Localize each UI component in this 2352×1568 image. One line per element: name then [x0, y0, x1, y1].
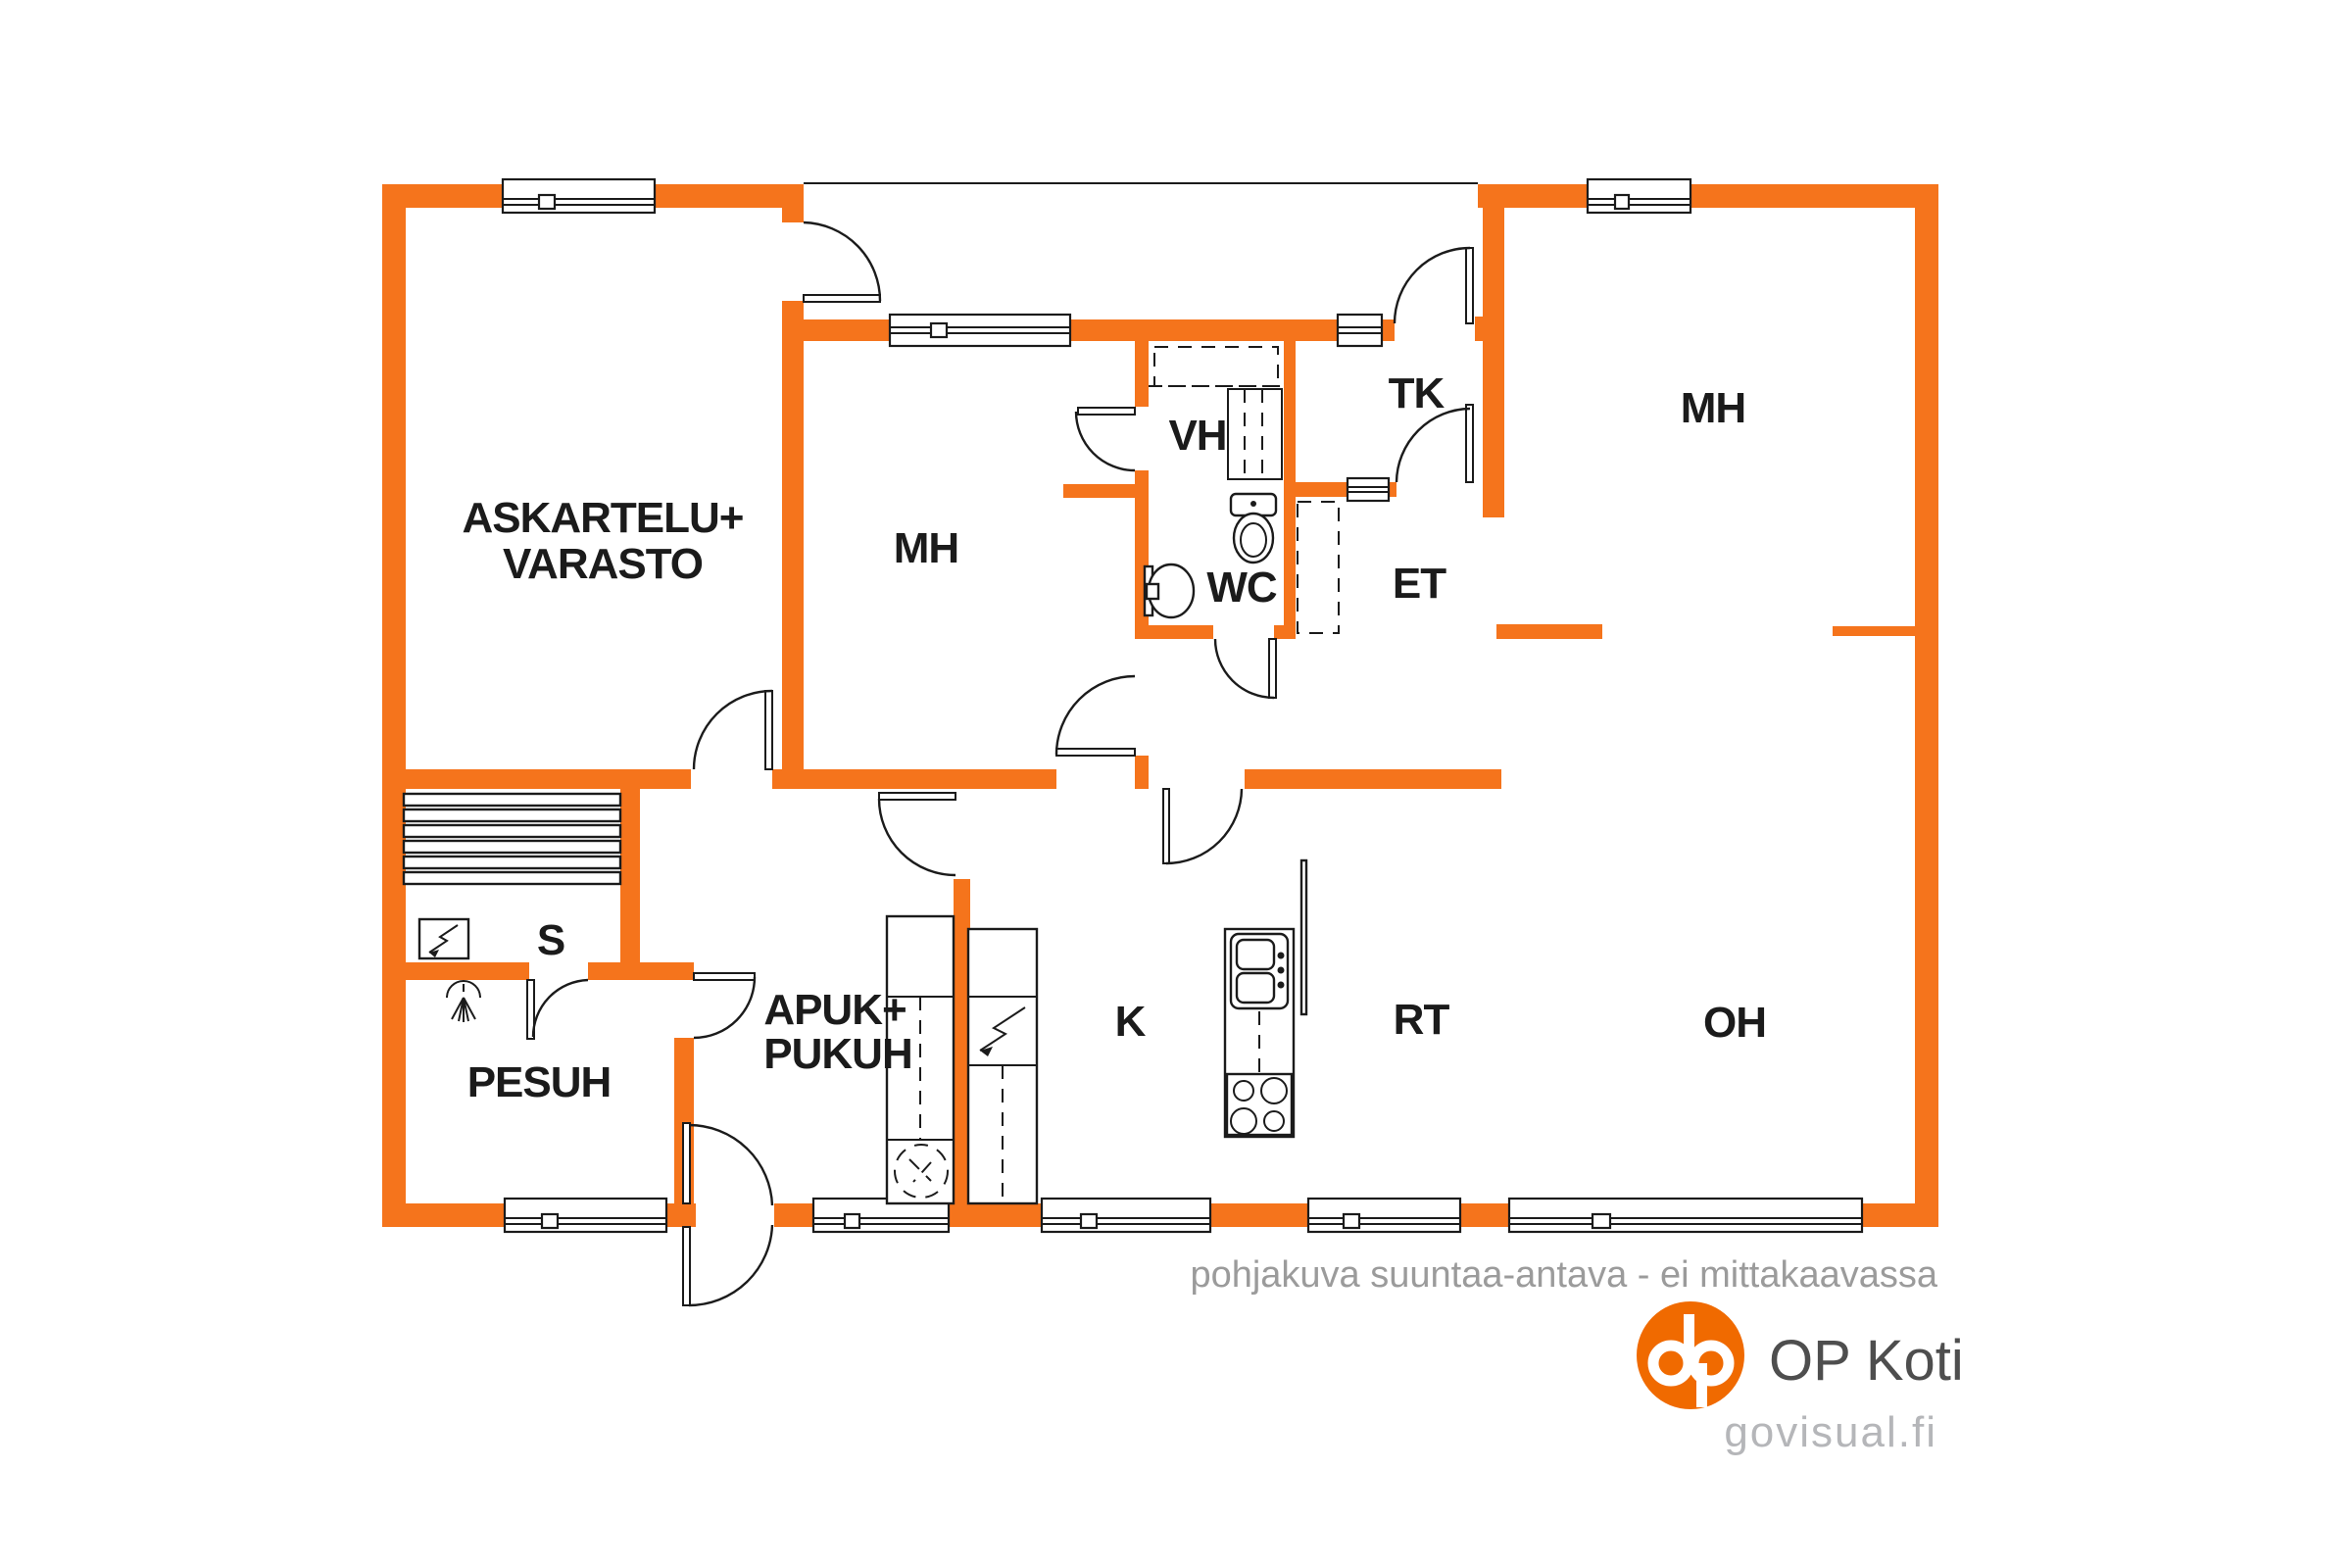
hob-icon [1227, 1074, 1292, 1135]
wall-segment [382, 184, 406, 1227]
room-label-k: K [1115, 998, 1147, 1046]
window [1509, 1199, 1862, 1232]
door-arc [1076, 412, 1135, 470]
shower-icon [447, 981, 480, 1022]
door-arc [1396, 409, 1470, 482]
wall-segment [1070, 319, 1338, 341]
wall-segment [804, 319, 890, 341]
wall-segment [782, 206, 804, 222]
room-label-oh: OH [1703, 999, 1766, 1047]
wall-segment [1135, 769, 1149, 789]
door-et-rt [1163, 789, 1242, 863]
door-leaf [765, 691, 772, 769]
room-label-askartelu-line1: ASKARTELU+ [462, 494, 743, 542]
disclaimer-text: pohjakuva suuntaa-antava - ei mittakaava… [1190, 1254, 1937, 1296]
wall-segment [1135, 756, 1149, 771]
wall-segment [1382, 319, 1395, 341]
door-leaf [1466, 405, 1473, 482]
wall-segment [949, 1203, 1042, 1227]
window [890, 315, 1070, 346]
door-vh [1076, 408, 1135, 470]
wall-segment [1460, 1203, 1509, 1227]
door-leaf [1269, 639, 1276, 698]
door-wc [1215, 639, 1276, 698]
wall-segment [1063, 484, 1135, 498]
kitchen-counter-west [968, 929, 1037, 1203]
window [1588, 179, 1690, 213]
wall-segment [588, 962, 694, 980]
room-label-apuk-line2: PUKUH [763, 1030, 911, 1078]
window [1347, 478, 1389, 501]
partition-screen [1301, 860, 1306, 1014]
door-leaf [683, 1227, 690, 1305]
room-label-wc: WC [1206, 563, 1277, 612]
brand-text: OP Koti [1769, 1329, 1964, 1393]
window [1042, 1199, 1210, 1232]
wall-segment [1478, 184, 1938, 208]
floor-plan-canvas: ASKARTELU+ VARASTO MH VH TK MH WC ET S P… [0, 0, 2352, 1568]
wall-segment [404, 962, 529, 980]
door-sauna [527, 980, 588, 1039]
footer: pohjakuva suuntaa-antava - ei mittakaava… [1190, 1254, 1963, 1456]
wall-segment [1274, 625, 1296, 639]
toilet-icon [1231, 494, 1276, 563]
wall-segment [1284, 482, 1347, 497]
wall-segment [1862, 1203, 1915, 1227]
door-arc [1395, 248, 1470, 323]
door-leaf [879, 793, 955, 800]
room-label-mh-left: MH [894, 524, 958, 572]
wall-segment [666, 1203, 696, 1227]
kitchen-peninsula [1225, 929, 1294, 1137]
walls [382, 184, 1938, 1227]
door-leaf [1078, 408, 1135, 415]
door-arc [804, 222, 880, 301]
door-arc [1166, 789, 1242, 863]
door-leaf [1466, 248, 1473, 323]
window [1338, 315, 1382, 346]
room-label-pesuh: PESUH [467, 1058, 612, 1106]
door-arc [1215, 639, 1274, 698]
room-label-vh: VH [1168, 412, 1226, 460]
door-askartelu-hall [694, 691, 772, 769]
op-logo [1637, 1301, 1744, 1409]
room-label-askartelu-line2: VARASTO [503, 540, 703, 588]
room-labels: ASKARTELU+ VARASTO MH VH TK MH WC ET S P… [462, 369, 1766, 1106]
wall-segment [404, 769, 691, 789]
door-arc [694, 977, 755, 1038]
wall-segment [1915, 184, 1938, 1227]
sauna-benches-icon [404, 794, 620, 884]
door-arc [533, 980, 588, 1037]
wall-segment [772, 769, 1056, 789]
wall-segment [1245, 769, 1501, 789]
door-arc [694, 691, 772, 769]
wall-segment [404, 1203, 505, 1227]
door-askartelu-porch [804, 222, 880, 302]
wall-segment [1496, 624, 1602, 639]
door-arc [879, 799, 955, 875]
wall-segment [1389, 482, 1396, 497]
wall-segment [1135, 625, 1213, 639]
et-closet [1298, 502, 1339, 633]
url-text: govisual.fi [1724, 1408, 1937, 1456]
door-arc [1056, 676, 1135, 755]
door-apuk-k [879, 793, 955, 875]
kitchen-sink-icon [1231, 934, 1288, 1008]
wall-segment [774, 1203, 813, 1227]
wall-segment [1135, 341, 1149, 407]
room-label-apuk-line1: APUK+ [763, 986, 906, 1034]
wall-segment [782, 301, 804, 769]
door-arc [689, 1125, 772, 1205]
wall-segment [620, 789, 640, 962]
sauna-stove-icon [419, 919, 468, 958]
door-leaf [694, 973, 755, 980]
room-label-mh-right: MH [1681, 384, 1745, 432]
room-label-rt: RT [1394, 996, 1450, 1044]
door-mh-left [1056, 676, 1135, 756]
room-label-et: ET [1393, 560, 1446, 608]
window [505, 1199, 666, 1232]
window [1308, 1199, 1460, 1232]
door-leaf [1056, 749, 1135, 756]
door-pesuh [694, 973, 755, 1038]
wall-segment [1483, 206, 1504, 517]
window [503, 179, 655, 213]
door-leaf [804, 295, 880, 302]
door-tk-porch [1395, 248, 1473, 323]
wall-segment [1210, 1203, 1308, 1227]
door-leaf [1163, 789, 1169, 863]
door-exterior-south [683, 1123, 772, 1305]
door-arc [689, 1225, 772, 1305]
wall-segment [1833, 626, 1915, 636]
door-leaf [683, 1123, 690, 1203]
sink-icon [1145, 564, 1194, 617]
floor-plan: ASKARTELU+ VARASTO MH VH TK MH WC ET S P… [0, 0, 2352, 1568]
room-label-s: S [537, 916, 564, 964]
room-label-tk: TK [1389, 369, 1445, 417]
